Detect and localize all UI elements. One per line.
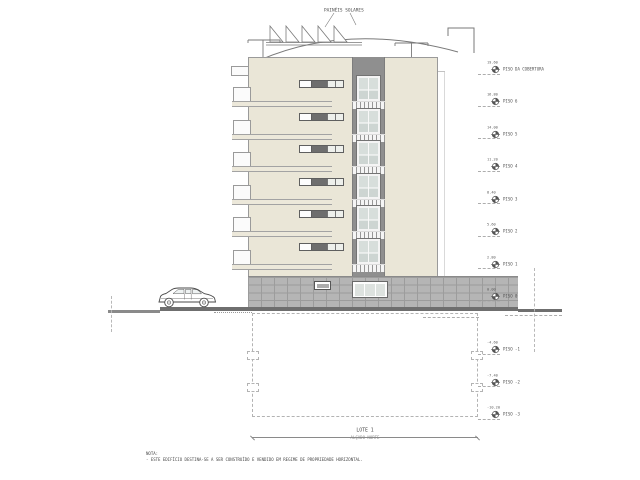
- level-leader-dash: [478, 106, 500, 107]
- level-leader-dash: [478, 386, 500, 387]
- basement-slab-notch: [471, 383, 483, 392]
- level-leader-dash: [478, 171, 500, 172]
- level-label: PISO 4: [503, 164, 517, 169]
- right-edge-line: [444, 72, 445, 302]
- floor-block: [232, 233, 446, 266]
- solar-panels-label: PAINÉIS SOLARES: [324, 8, 364, 13]
- level-marker: -4.60 PISO -1: [486, 345, 556, 355]
- level-label: PISO 1: [503, 262, 517, 267]
- floor-slab: [232, 264, 332, 270]
- level-label: PISO 3: [503, 197, 517, 202]
- level-leader-dash: [478, 354, 500, 355]
- level-label: PISO 6: [503, 99, 517, 104]
- level-leader-dash: [478, 236, 500, 237]
- level-leader-dash: [478, 268, 500, 269]
- balcony-door-window: [357, 76, 380, 101]
- entrance-door: [352, 281, 388, 298]
- car-windows: [173, 289, 202, 294]
- level-marker: 5.60 PISO 2: [486, 227, 556, 237]
- strip-window: [299, 210, 344, 218]
- strip-window: [299, 178, 344, 186]
- strip-window: [299, 145, 344, 153]
- ground-line-left: [108, 310, 160, 313]
- level-label: PISO -3: [503, 412, 520, 417]
- level-label: PISO 5: [503, 132, 517, 137]
- level-marker: -10.20 PISO -3: [486, 410, 556, 420]
- level-label: PISO -2: [503, 380, 520, 385]
- level-label: PISO 2: [503, 229, 517, 234]
- elevation-drawing: PAINÉIS SOLARES: [0, 0, 640, 480]
- basement-slab-notch: [471, 351, 483, 360]
- level-marker: 0.00 PISO 0: [486, 292, 556, 302]
- ground-floor-tiled-wall: [248, 276, 518, 307]
- floor-block: [232, 200, 446, 233]
- level-marker: 19.60 PISO DA COBERTURA: [486, 65, 556, 75]
- level-leader-dash: [478, 301, 500, 302]
- elevation-title: ALÇADO NORTE: [351, 436, 380, 440]
- ground-line-right: [518, 309, 562, 312]
- basement-step-line: [423, 317, 479, 318]
- level-label: PISO 0: [503, 294, 517, 299]
- right-edge-tick: [438, 71, 445, 72]
- label-leader-lines: [325, 13, 356, 27]
- strip-window: [299, 243, 344, 251]
- lot-title: LOTE 1: [356, 428, 373, 433]
- strip-window: [299, 113, 344, 121]
- solar-panel-shapes: [270, 26, 347, 42]
- note-heading: NOTA:: [146, 452, 158, 456]
- floor-block: [232, 70, 446, 103]
- balcony-door-window: [357, 141, 380, 166]
- level-marker: 14.00 PISO 5: [486, 130, 556, 140]
- level-leader-dash: [478, 74, 500, 75]
- basement-slab-notch: [247, 383, 259, 392]
- car-illustration: [157, 285, 217, 309]
- level-marker: 2.80 PISO 1: [486, 260, 556, 270]
- level-label: PISO DA COBERTURA: [503, 67, 544, 72]
- basement-slab-notch: [247, 351, 259, 360]
- level-leader-dash: [478, 419, 500, 420]
- floor-block: [232, 135, 446, 168]
- balcony-door-window: [357, 239, 380, 264]
- note-text: - ESTE EDIFÍCIO DESTINA-SE A SER CONSTRU…: [146, 458, 363, 462]
- level-marker: 16.80 PISO 6: [486, 97, 556, 107]
- roof-bulkhead-outline: [448, 28, 474, 53]
- balcony-door-window: [357, 109, 380, 134]
- lot-boundary-right: [534, 268, 535, 352]
- level-marker: -7.40 PISO -2: [486, 378, 556, 388]
- balcony-door-window: [357, 174, 380, 199]
- lot-boundary-left: [111, 296, 112, 332]
- floor-block: [232, 168, 446, 201]
- ground-floor-window: [314, 281, 331, 290]
- strip-window: [299, 80, 344, 88]
- level-leader-dash: [478, 138, 500, 139]
- level-marker: 11.20 PISO 4: [486, 162, 556, 172]
- floor-block: [232, 103, 446, 136]
- balcony-railing: [352, 264, 385, 272]
- basement-outline: [252, 313, 478, 417]
- curb-dotted-texture: [214, 312, 252, 313]
- balcony-door-window: [357, 206, 380, 231]
- level-marker: 8.40 PISO 3: [486, 195, 556, 205]
- level-leader-dash: [478, 203, 500, 204]
- level-label: PISO -1: [503, 347, 520, 352]
